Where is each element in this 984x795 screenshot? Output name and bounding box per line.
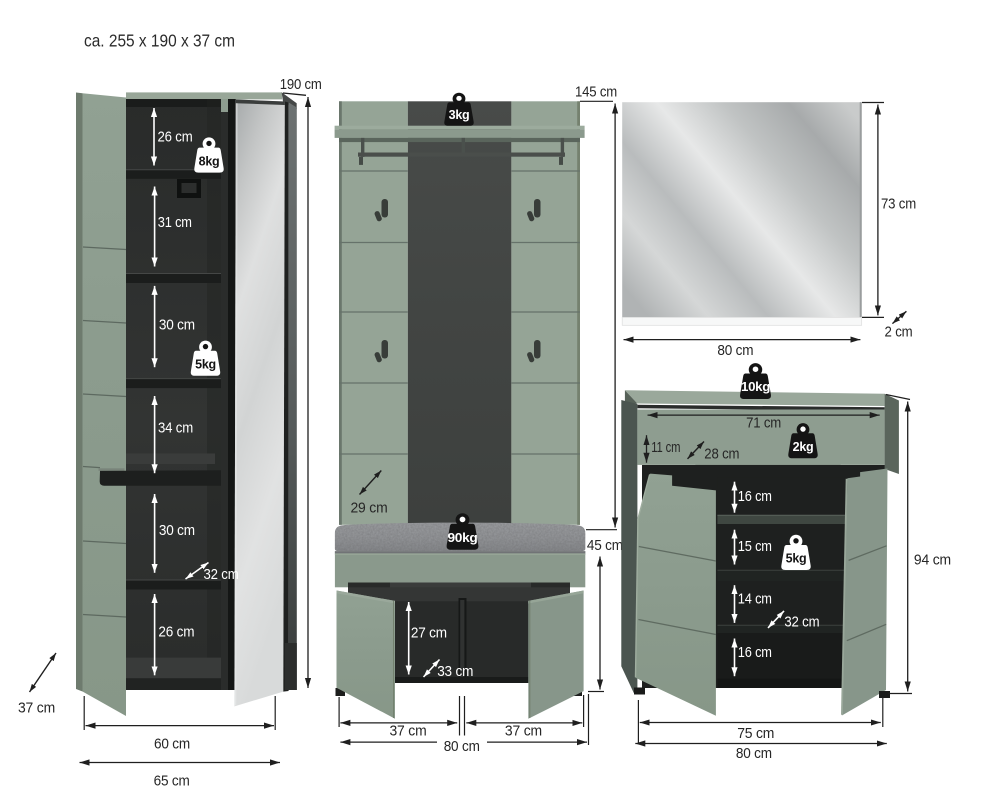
svg-text:26 cm: 26 cm xyxy=(158,623,194,640)
svg-text:5kg: 5kg xyxy=(786,552,807,566)
svg-text:45 cm: 45 cm xyxy=(587,537,623,554)
svg-text:3kg: 3kg xyxy=(449,108,470,122)
svg-text:60 cm: 60 cm xyxy=(154,735,190,752)
svg-text:15 cm: 15 cm xyxy=(738,538,772,555)
svg-text:2kg: 2kg xyxy=(793,440,814,454)
svg-text:94 cm: 94 cm xyxy=(914,551,951,568)
svg-text:26 cm: 26 cm xyxy=(158,129,193,146)
svg-text:90kg: 90kg xyxy=(448,531,478,545)
svg-text:ca. 255 x 190 x 37 cm: ca. 255 x 190 x 37 cm xyxy=(84,31,235,51)
svg-text:16 cm: 16 cm xyxy=(738,644,772,661)
svg-text:71 cm: 71 cm xyxy=(746,415,781,432)
svg-text:27 cm: 27 cm xyxy=(411,624,447,641)
svg-text:65 cm: 65 cm xyxy=(154,772,190,789)
svg-text:190 cm: 190 cm xyxy=(280,76,322,93)
svg-text:8kg: 8kg xyxy=(199,154,220,168)
svg-text:80 cm: 80 cm xyxy=(736,745,772,762)
svg-text:10kg: 10kg xyxy=(741,380,770,394)
svg-text:16 cm: 16 cm xyxy=(738,488,772,505)
svg-text:28 cm: 28 cm xyxy=(704,446,739,463)
svg-text:2 cm: 2 cm xyxy=(885,323,913,340)
svg-text:75 cm: 75 cm xyxy=(737,725,774,742)
svg-text:145 cm: 145 cm xyxy=(575,84,617,101)
svg-text:30 cm: 30 cm xyxy=(159,522,195,539)
svg-text:32 cm: 32 cm xyxy=(204,566,239,583)
svg-text:34 cm: 34 cm xyxy=(158,420,193,437)
svg-text:29 cm: 29 cm xyxy=(351,500,388,517)
svg-text:32 cm: 32 cm xyxy=(784,614,819,631)
svg-text:37 cm: 37 cm xyxy=(505,723,542,740)
svg-text:11 cm: 11 cm xyxy=(651,439,680,456)
svg-text:80 cm: 80 cm xyxy=(717,342,753,359)
svg-text:33 cm: 33 cm xyxy=(437,663,473,680)
svg-text:30 cm: 30 cm xyxy=(159,316,195,333)
svg-text:5kg: 5kg xyxy=(195,358,216,372)
svg-text:73 cm: 73 cm xyxy=(881,196,916,213)
svg-text:31 cm: 31 cm xyxy=(158,214,192,231)
svg-text:80 cm: 80 cm xyxy=(444,738,480,755)
svg-text:14 cm: 14 cm xyxy=(738,591,772,608)
svg-text:37 cm: 37 cm xyxy=(18,700,55,717)
svg-text:37 cm: 37 cm xyxy=(390,723,427,740)
